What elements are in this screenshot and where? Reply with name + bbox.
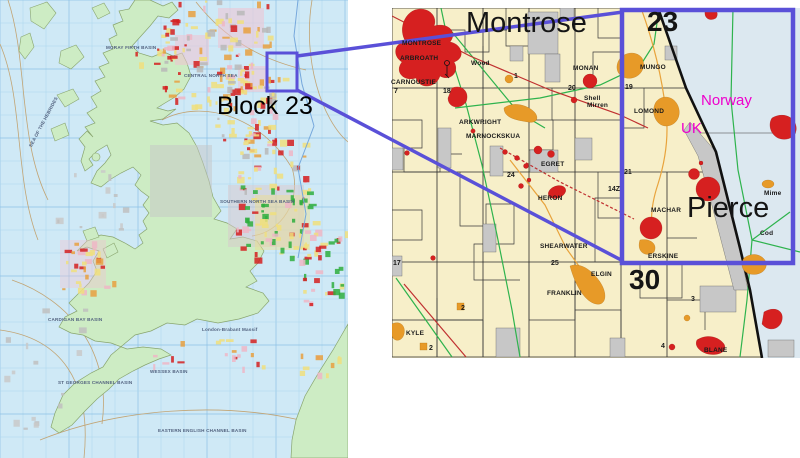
uk-overview-map [0, 0, 348, 458]
uk-overview-map-graphic [0, 0, 348, 458]
block23-detail-map [392, 8, 800, 358]
block23-detail-map-graphic [392, 8, 800, 358]
slide-canvas: Block 23 MORAY FIRTH BASINCENTRAL NORTH … [0, 0, 800, 458]
